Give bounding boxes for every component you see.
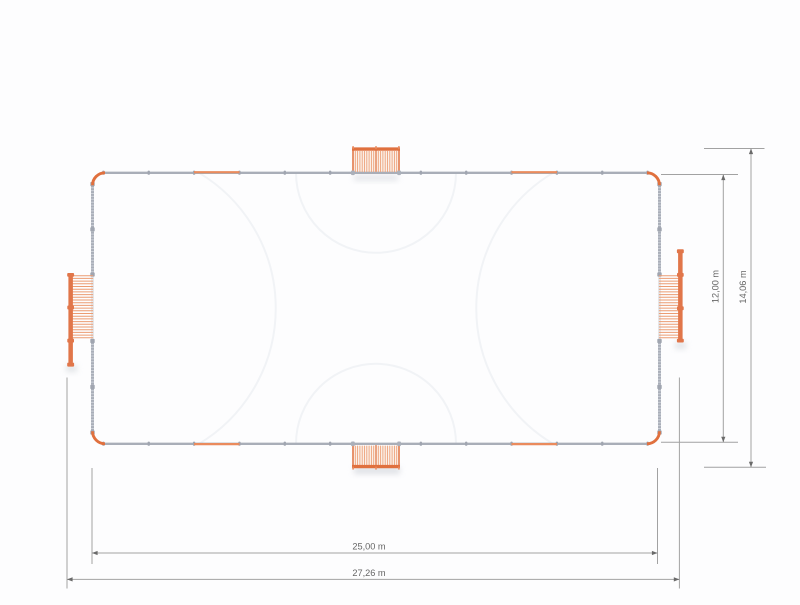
svg-text:27,26 m: 27,26 m [352, 568, 386, 578]
svg-text:14,06 m: 14,06 m [738, 270, 748, 304]
svg-text:12,00 m: 12,00 m [711, 270, 721, 304]
svg-text:25,00 m: 25,00 m [352, 542, 386, 552]
